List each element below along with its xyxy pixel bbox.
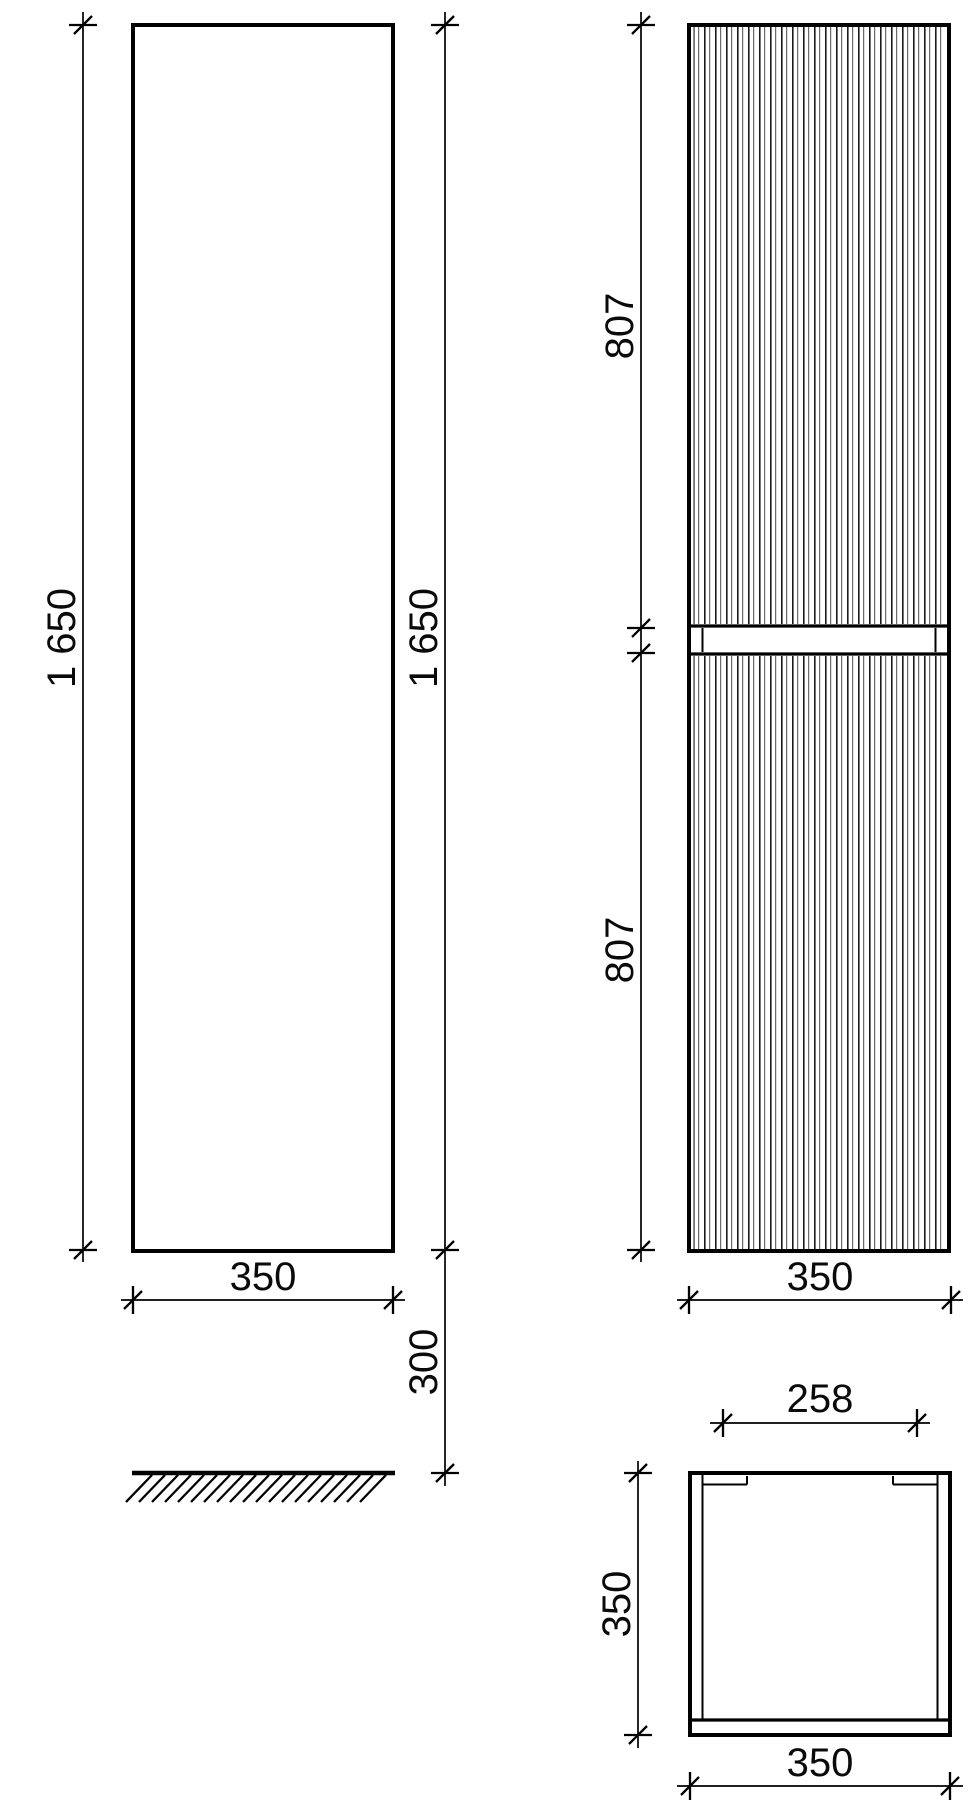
door-top-label: 807 xyxy=(598,293,642,360)
technical-drawing-page: 1 650 1 650 300 350 807 807 350 xyxy=(0,0,978,1800)
upper-door-flutes xyxy=(694,27,945,624)
front-width-label: 350 xyxy=(787,1255,854,1299)
cabinet-technical-drawing: 1 650 1 650 300 350 807 807 350 xyxy=(0,0,978,1800)
door-bottom-label: 807 xyxy=(598,917,642,984)
floor-hatch xyxy=(126,1475,386,1502)
lower-door-flutes xyxy=(694,656,945,1249)
side-view: 1 650 1 650 300 350 xyxy=(40,12,459,1502)
top-view: 258 350 350 xyxy=(595,1377,963,1800)
top-outline xyxy=(690,1473,950,1735)
height-label-left: 1 650 xyxy=(40,588,84,688)
front-view: 807 807 350 xyxy=(598,12,963,1314)
floor-gap-label: 300 xyxy=(402,1329,446,1396)
side-panel-outline xyxy=(133,25,393,1251)
side-width-label: 350 xyxy=(230,1255,297,1299)
top-width-label: 350 xyxy=(787,1741,854,1785)
height-label-right: 1 650 xyxy=(402,588,446,688)
depth-label: 350 xyxy=(595,1571,639,1638)
inner-width-label: 258 xyxy=(787,1377,854,1421)
